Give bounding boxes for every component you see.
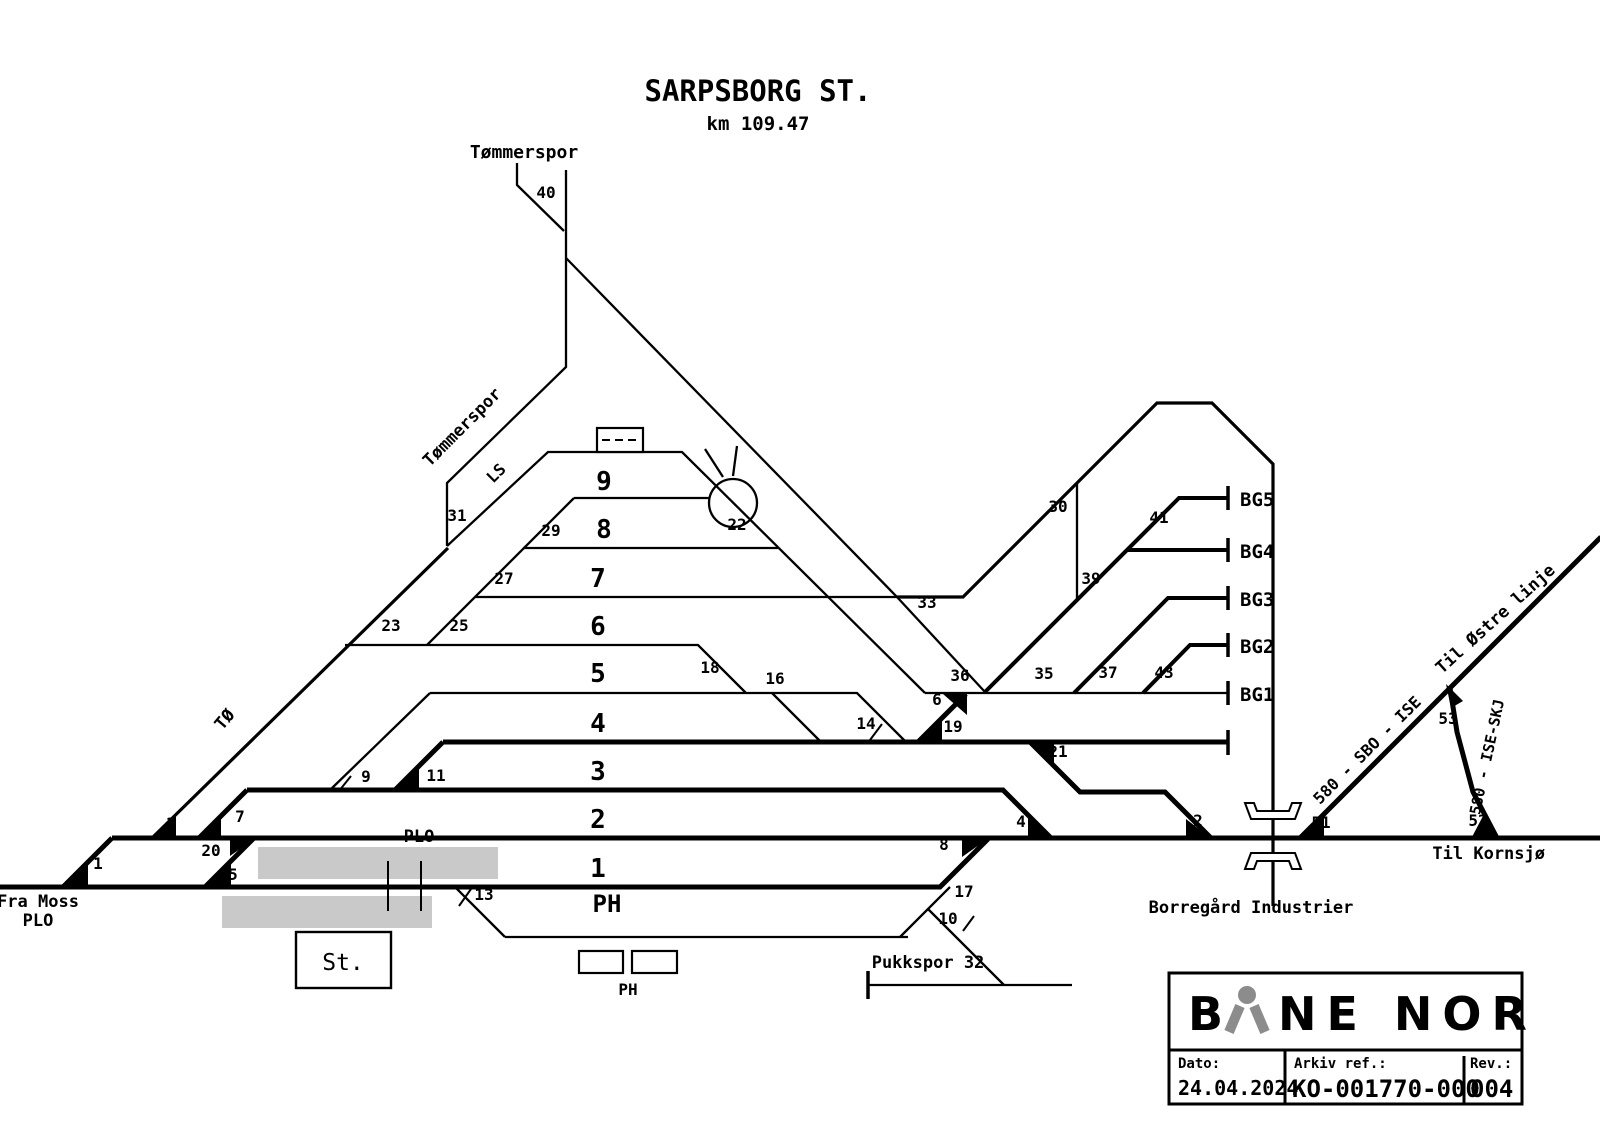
switch-label-9: 9 (361, 767, 371, 786)
til-kornsjo-label: Til Kornsjø (1432, 844, 1545, 864)
switch-label-31: 31 (447, 506, 466, 525)
switch-label-40: 40 (536, 183, 555, 202)
switch-label-8: 8 (939, 835, 949, 854)
bg-track-label-3: BG3 (1240, 589, 1274, 611)
switch-label-6: 6 (932, 690, 942, 709)
switch-label-27: 27 (494, 569, 513, 588)
switch-label-14: 14 (856, 714, 875, 733)
ls-label: LS (483, 460, 510, 487)
track-diagram: SARPSBORG ST.km 109.47Tømmerspor40Tømmer… (0, 0, 1600, 1131)
track-3-line (247, 790, 1051, 838)
tracks-bold (0, 537, 1600, 887)
plo-crossing-label: PLO (404, 827, 435, 847)
switch-label-51: 51 (1311, 813, 1330, 832)
switch-triangle-53 (1446, 684, 1463, 708)
ph-buildings-label: PH (618, 980, 637, 999)
arkiv-label: Arkiv ref.: (1294, 1056, 1387, 1072)
track-label-4: 4 (590, 709, 606, 739)
dato-label: Dato: (1178, 1056, 1220, 1072)
switch-label-4: 4 (1016, 812, 1026, 831)
track-label-ph: PH (593, 890, 622, 918)
switch-label-13: 13 (474, 885, 493, 904)
switch-label-5: 5 (228, 865, 238, 884)
track-diagram-svg: SARPSBORG ST.km 109.47Tømmerspor40Tømmer… (0, 0, 1600, 1131)
fra-moss-label: Fra Moss (0, 892, 79, 912)
switch-label-10: 10 (938, 909, 957, 928)
switch-label-39: 39 (1081, 569, 1100, 588)
ls-track-and-turntable-diagonal (447, 452, 925, 693)
borregard-label: Borregård Industrier (1149, 896, 1354, 918)
tracks-medium (152, 403, 1273, 906)
switch-label-1: 1 (93, 854, 103, 873)
track-label-3: 3 (590, 757, 606, 787)
tommerspor-top-label: Tømmerspor (470, 142, 579, 163)
switch-label-29: 29 (541, 521, 560, 540)
switch-label-11: 11 (426, 766, 445, 785)
fra-moss-plo-label: PLO (23, 911, 54, 931)
platform-upper (258, 847, 498, 879)
switch-label-25: 25 (449, 616, 468, 635)
tommerspor-rot-label: Tømmerspor (419, 384, 506, 471)
station-title: SARPSBORG ST. (645, 74, 872, 108)
ostre-linje-label: Til Østre linje (1432, 560, 1559, 678)
arkiv-value: KO-001770-000 (1292, 1075, 1480, 1103)
switch-label-17: 17 (954, 882, 973, 901)
switch-label-37: 37 (1098, 663, 1117, 682)
main-crossing-diagonal (566, 258, 985, 692)
ph-building-1 (579, 951, 623, 973)
switch-label-36: 36 (950, 666, 969, 685)
track-label-6: 6 (590, 612, 606, 642)
title-block: B NE NOR Dato: 24.04.2024 Arkiv ref.: KO… (1169, 973, 1537, 1104)
track-5-line (430, 693, 906, 742)
bg-track-label-1: BG1 (1240, 684, 1274, 706)
switch-label-53: 53 (1438, 709, 1457, 728)
switch-label-18: 18 (700, 658, 719, 677)
turntable-ticks (705, 446, 737, 477)
ph-building-2 (632, 951, 677, 973)
to-diagonal (152, 548, 448, 838)
switch-label-19: 19 (943, 717, 962, 736)
to-label: TØ (211, 705, 240, 734)
track-label-8: 8 (596, 515, 612, 545)
track-label-9: 9 (596, 467, 612, 497)
switch-16-diagonal (772, 693, 821, 742)
track-6-line (345, 645, 746, 693)
switch-label-30: 30 (1048, 497, 1067, 516)
switch-label-41: 41 (1149, 508, 1168, 527)
track-label-5: 5 (590, 659, 606, 689)
platform-lower (222, 896, 432, 928)
switch-label-20: 20 (201, 841, 220, 860)
bg-track-label-5: BG5 (1240, 489, 1274, 511)
station-building-label: St. (322, 950, 364, 976)
rev-label: Rev.: (1470, 1056, 1512, 1072)
switch-label-3: 3 (166, 814, 176, 833)
sbo-ise-label: 580 - SBO - ISE (1309, 692, 1425, 808)
station-km: km 109.47 (707, 113, 810, 135)
switch-label-16: 16 (765, 669, 784, 688)
bg-track-label-4: BG4 (1240, 541, 1274, 563)
logo-text-b: B (1188, 987, 1233, 1041)
switch-label-7: 7 (235, 807, 245, 826)
switch-label-33: 33 (917, 593, 936, 612)
dato-value: 24.04.2024 (1178, 1076, 1298, 1100)
ise-skj-label: 580 - ISE-SKJ (1466, 698, 1508, 817)
pukkspor-label: Pukkspor 32 (872, 953, 985, 973)
peak-and-borregard-vertical (897, 403, 1273, 906)
switch-label-2: 2 (1193, 811, 1203, 830)
rev-value: 004 (1470, 1075, 1513, 1103)
track-label-7: 7 (590, 564, 606, 594)
switch-label-43: 43 (1154, 663, 1173, 682)
sbo-ise-line (1300, 537, 1600, 838)
switch-symbols (63, 684, 1497, 931)
logo-a-dot (1238, 986, 1256, 1004)
switch-label-35: 35 (1034, 664, 1053, 683)
logo-text-rest: NE NOR (1278, 987, 1537, 1041)
switch-label-22: 22 (727, 515, 746, 534)
switch-label-21: 21 (1048, 742, 1067, 761)
track-label-1: 1 (590, 854, 606, 884)
bg-track-label-2: BG2 (1240, 636, 1274, 658)
track-label-2: 2 (590, 805, 606, 835)
switch-label-23: 23 (381, 616, 400, 635)
